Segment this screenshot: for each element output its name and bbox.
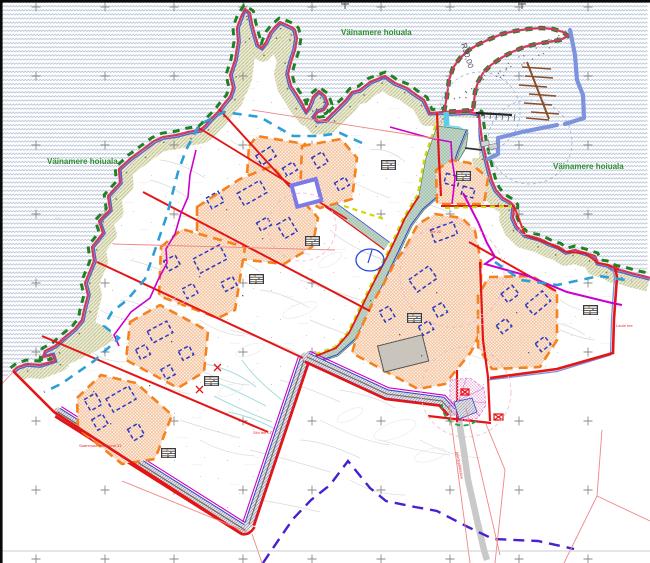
svg-text:Saaremaa metskond 31: Saaremaa metskond 31 [79,443,122,448]
svg-text:Väinamere hoiuala: Väinamere hoiuala [341,28,412,37]
svg-text:Sihi tee L1: Sihi tee L1 [253,430,273,435]
svg-text:Lautri tee: Lautri tee [616,323,633,328]
svg-text:~: ~ [520,96,523,102]
svg-text:Väinamere hoiuala: Väinamere hoiuala [47,157,118,166]
svg-text:~ ~ ~: ~ ~ ~ [372,20,384,26]
svg-text:Väinamere hoiuala: Väinamere hoiuala [553,162,624,171]
svg-text:tee 22: tee 22 [430,229,442,234]
svg-text:~~: ~~ [55,216,61,222]
